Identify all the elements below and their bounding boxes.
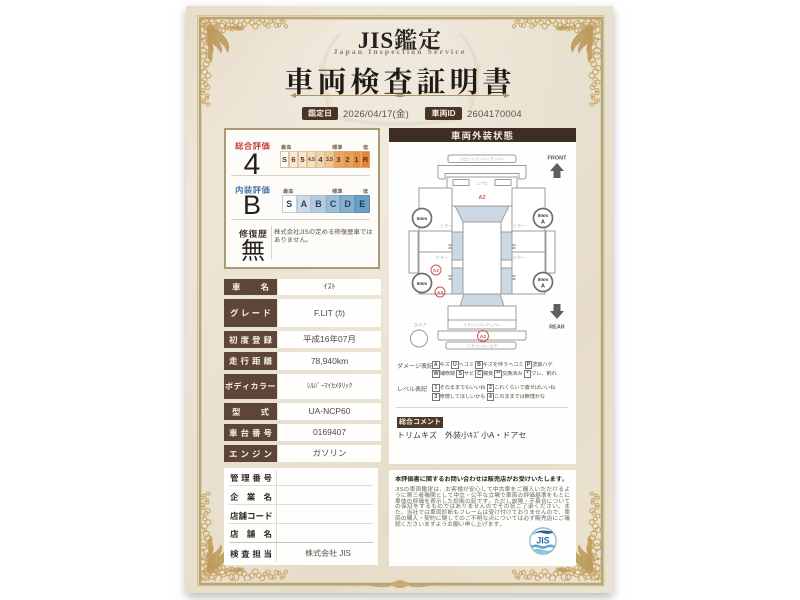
svg-text:FRONT: FRONT	[548, 154, 568, 162]
svg-text:A2: A2	[478, 193, 485, 201]
svg-text:6mm: 6mm	[417, 216, 427, 222]
svg-text:REAR: REAR	[549, 323, 565, 331]
svg-text:6mm: 6mm	[417, 281, 427, 287]
svg-text:A2: A2	[480, 333, 486, 340]
svg-text:A2: A2	[433, 267, 439, 274]
svg-text:ピラー: ピラー	[436, 255, 449, 261]
svg-text:リアバンパーアッパー: リアバンパーアッパー	[463, 323, 501, 329]
svg-text:A: A	[541, 282, 545, 290]
svg-text:リアバンパーロア: リアバンパーロア	[467, 344, 498, 350]
svg-text:A: A	[541, 218, 545, 226]
svg-text:フロントバンパーアッパー: フロントバンパーアッパー	[459, 157, 505, 163]
svg-text:ミラー: ミラー	[513, 224, 526, 230]
svg-text:A3: A3	[437, 289, 443, 296]
svg-text:JIS: JIS	[536, 536, 549, 546]
svg-text:エアロ: エアロ	[476, 182, 488, 187]
svg-text:スペア: スペア	[413, 323, 427, 329]
svg-text:ミラー: ミラー	[440, 224, 453, 230]
svg-text:ピラー: ピラー	[513, 255, 526, 261]
